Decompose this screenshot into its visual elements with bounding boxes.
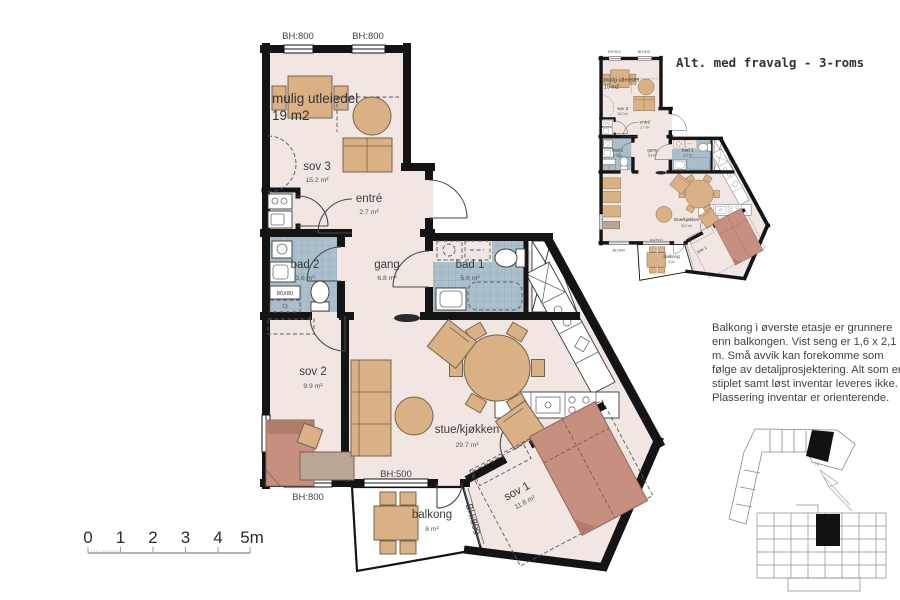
room-label-utleiedel: mulig utleiedel xyxy=(272,91,358,106)
note-line: Balkong i øverste etasje er grunnere xyxy=(712,322,892,334)
room-area-utleiedel: 19 m2 xyxy=(272,108,310,123)
window-label-top-right: BH:800 xyxy=(352,31,384,42)
note-line: stiplet samt løst inventar leveres ikke. xyxy=(712,378,898,390)
alt-room-area-balkong: 8 m² xyxy=(668,260,674,264)
note-line: m. Små avvik kan forekomme som xyxy=(712,350,884,362)
alt-room-area-sov3: 15.2 m² xyxy=(617,112,628,116)
scale-label-5m: 5m xyxy=(240,528,264,547)
room-label-sov3: sov 3 xyxy=(303,161,331,173)
stue-sofa xyxy=(351,360,391,456)
north-arrow-label: N xyxy=(815,462,819,468)
alt-room-area-gang: 6.8 m² xyxy=(648,154,657,158)
room-label-stue: stue/kjøkken xyxy=(435,424,500,436)
alt-room-area-utleiedel: 19 m2 xyxy=(604,84,620,90)
elevation-highlighted-unit xyxy=(816,514,840,546)
north-arrow: N xyxy=(815,462,852,511)
alt-room-area-bad2: 3.6 m² xyxy=(613,154,622,158)
window-label-balcony-top: BH:500 xyxy=(380,469,412,480)
room-label-entre: entré xyxy=(356,193,382,205)
room-area-balkong: 8 m² xyxy=(425,526,439,533)
alt-room-area-stue: 40.2 m² xyxy=(681,224,692,228)
note-text: Balkong i øverste etasje er grunnere enn… xyxy=(712,322,900,404)
alt-room-label-stue: stue/kjøkken xyxy=(674,217,700,222)
scale-label-0: 0 xyxy=(83,528,92,547)
alt-room-label-balkong: balkong xyxy=(664,254,681,259)
note-line: enn balkongen. Vist seng er 1,6 x 2,1 xyxy=(712,336,897,348)
sov2-desk xyxy=(300,452,354,480)
scale-label-2: 2 xyxy=(148,528,157,547)
alt-room-label-entre: entré xyxy=(640,120,651,125)
alt-floor-plan: mulig utleiedel 19 m2 sov 3 15.2 m² entr… xyxy=(599,50,864,280)
room-label-balkong: balkong xyxy=(412,509,452,521)
alt-room-area-entre: 2.7 m² xyxy=(640,126,649,130)
alt-window-label-top-right: BH:800 xyxy=(638,50,651,54)
note-line: følge av detaljprosjektering. Alt som er xyxy=(712,364,900,376)
room-area-bad1: 5.6 m² xyxy=(460,275,480,282)
room-label-gang: gang xyxy=(374,259,400,271)
elevation-grid xyxy=(757,505,886,591)
room-label-bad1: bad 1 xyxy=(456,259,485,271)
room-area-stue: 29.7 m² xyxy=(455,442,479,449)
alt-room-label-gang: gang xyxy=(647,148,658,153)
note-line: Plassering inventar er orienterende. xyxy=(712,392,889,404)
alt-window-label-bottom-left: BH:800 xyxy=(613,249,626,253)
alt-room-label-bad2: bad 2 xyxy=(612,148,624,153)
scale-label-3: 3 xyxy=(181,528,190,547)
shower-size-label: 80X80 xyxy=(277,291,293,297)
scale-label-4: 4 xyxy=(213,528,222,547)
scale-bar: 0 1 2 3 4 5m xyxy=(83,528,264,553)
room-area-sov2: 9.9 m² xyxy=(303,383,323,390)
alt-room-label-bad1: bad 1 xyxy=(682,148,694,153)
window-label-bottom-left: BH:800 xyxy=(292,492,324,503)
alt-window-label-top-left: BH:800 xyxy=(608,50,621,54)
room-area-gang: 6.8 m² xyxy=(377,275,397,282)
room-label-bad2: bad 2 xyxy=(291,259,320,271)
scale-label-1: 1 xyxy=(116,528,125,547)
alt-window-label-balcony-top: BH:500 xyxy=(650,239,663,243)
room-area-bad2: 3.6 m² xyxy=(295,275,315,282)
alt-room-label-utleiedel: mulig utleiedel xyxy=(604,77,640,83)
alt-plan-title: Alt. med fravalg - 3-roms xyxy=(676,55,864,70)
window-label-top-left: BH:800 xyxy=(282,31,314,42)
site-key-plan: N xyxy=(729,429,886,591)
room-label-sov2: sov 2 xyxy=(299,366,327,378)
floor-plan-canvas: mulig utleiedel 19 m2 sov 3 15.2 m² entr… xyxy=(0,0,900,600)
alt-room-area-bad1: 5.6 m² xyxy=(683,154,692,158)
floor-plan-sheet: mulig utleiedel 19 m2 sov 3 15.2 m² entr… xyxy=(0,0,900,600)
alt-room-label-sov3: sov 3 xyxy=(617,106,628,111)
room-area-entre: 2.7 m² xyxy=(359,209,379,216)
room-area-sov3: 15.2 m² xyxy=(305,177,329,184)
